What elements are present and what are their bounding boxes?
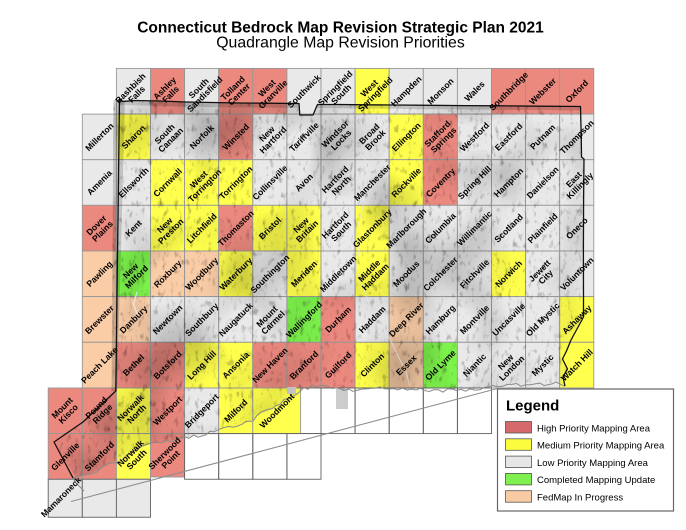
svg-text:FedMap In Progress: FedMap In Progress bbox=[537, 493, 623, 504]
svg-text:Quadrangle Map Revision Priori: Quadrangle Map Revision Priorities bbox=[216, 35, 465, 52]
svg-text:Completed Mapping Update: Completed Mapping Update bbox=[537, 475, 655, 486]
svg-text:Low Priority Mapping Area: Low Priority Mapping Area bbox=[537, 458, 649, 469]
svg-text:Medium Priority Mapping Area: Medium Priority Mapping Area bbox=[537, 441, 665, 452]
svg-text:High Priority Mapping Area: High Priority Mapping Area bbox=[537, 423, 651, 434]
svg-text:Legend: Legend bbox=[506, 398, 559, 415]
